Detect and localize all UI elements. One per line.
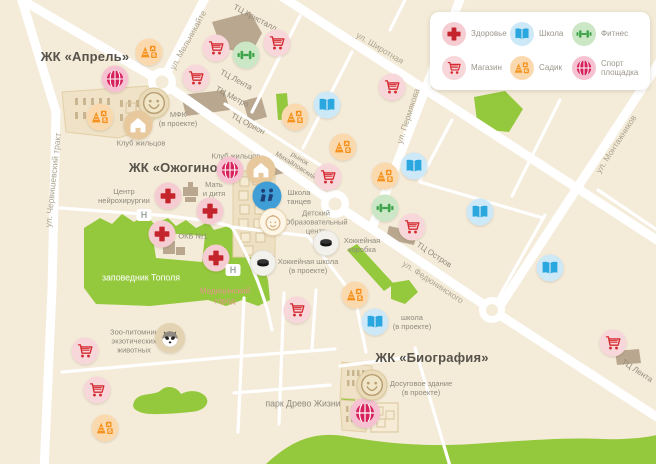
svg-text:Б: Б [525, 68, 528, 73]
cart-marker[interactable] [72, 338, 99, 365]
cart-marker[interactable] [284, 297, 311, 324]
puck-marker[interactable] [313, 230, 339, 256]
legend-item-label: Садик [539, 63, 562, 72]
book-marker[interactable] [362, 309, 389, 336]
kindergarten-marker[interactable]: АБ [136, 39, 163, 66]
cart-marker[interactable] [203, 35, 230, 62]
fitness-marker[interactable] [372, 195, 399, 222]
cart-icon [442, 56, 466, 80]
legend-item-label: Школа [539, 29, 563, 38]
kindergarten-marker[interactable]: АБ [87, 104, 114, 131]
map-legend: ЗдоровьеШколаФитнесМагазинАБСадикСпорт п… [430, 12, 650, 90]
kindergarten-marker[interactable]: АБ [282, 104, 309, 131]
fitness-marker[interactable] [233, 42, 260, 69]
book-marker[interactable] [314, 92, 341, 119]
dancers-marker[interactable] [253, 182, 282, 211]
helipad-icon: H [226, 264, 241, 276]
house-marker[interactable] [124, 111, 153, 140]
legend-item-book: Школа [510, 22, 572, 46]
map-canvas[interactable]: ЖК «Апрель»ЖК «Ожогино»ЖК «Биография»МФК… [0, 0, 656, 464]
legend-item-kindergarten: АБСадик [510, 56, 572, 80]
cart-marker[interactable] [264, 30, 291, 57]
cart-marker[interactable] [84, 377, 111, 404]
legend-item-label: Здоровье [471, 29, 507, 38]
book-marker[interactable] [401, 153, 428, 180]
legend-item-label: Спорт площадка [601, 59, 642, 77]
baby-marker[interactable] [259, 208, 287, 236]
sport-icon [572, 56, 596, 80]
legend-item-label: Магазин [471, 63, 502, 72]
book-marker[interactable] [537, 255, 564, 282]
cart-marker[interactable] [379, 74, 406, 101]
sport-marker[interactable] [102, 66, 129, 93]
kindergarten-icon: АБ [510, 56, 534, 80]
cart-marker[interactable] [183, 65, 210, 92]
raccoon-marker[interactable] [155, 323, 185, 353]
fitness-icon [572, 22, 596, 46]
kindergarten-marker[interactable]: АБ [342, 282, 369, 309]
legend-item-fitness: Фитнес [572, 22, 642, 46]
puck-marker[interactable] [250, 250, 276, 276]
sport-marker[interactable] [350, 398, 380, 428]
sport-marker[interactable] [217, 157, 244, 184]
legend-item-health: Здоровье [442, 22, 510, 46]
cart-marker[interactable] [399, 214, 426, 241]
helipad-icon: H [137, 209, 152, 221]
book-marker[interactable] [467, 199, 494, 226]
legend-item-label: Фитнес [601, 29, 628, 38]
cart-marker[interactable] [600, 330, 627, 357]
kindergarten-marker[interactable]: АБ [92, 415, 119, 442]
kindergarten-marker[interactable]: АБ [372, 163, 399, 190]
health-marker[interactable] [197, 198, 224, 225]
health-marker[interactable] [149, 221, 176, 248]
house-marker[interactable] [247, 156, 276, 185]
health-marker[interactable] [155, 183, 182, 210]
svg-text:А: А [524, 62, 527, 67]
smiley-marker[interactable] [357, 370, 388, 401]
kindergarten-marker[interactable]: АБ [330, 134, 357, 161]
cart-marker[interactable] [315, 164, 342, 191]
legend-item-cart: Магазин [442, 56, 510, 80]
health-icon [442, 22, 466, 46]
book-icon [510, 22, 534, 46]
legend-item-sport: Спорт площадка [572, 56, 642, 80]
